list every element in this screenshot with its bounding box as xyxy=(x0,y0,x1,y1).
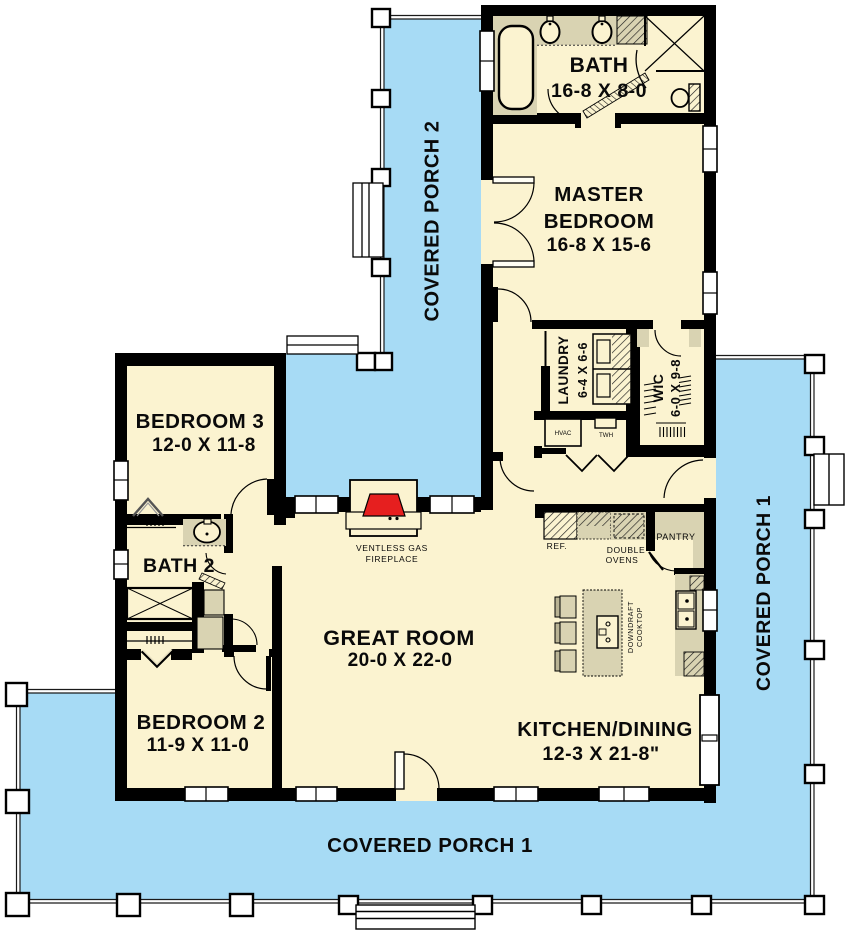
svg-text:COVERED PORCH 2: COVERED PORCH 2 xyxy=(422,121,444,322)
svg-text:12-0 X 11-8: 12-0 X 11-8 xyxy=(152,435,256,456)
svg-text:BATH 2: BATH 2 xyxy=(143,555,215,577)
svg-text:BEDROOM 3: BEDROOM 3 xyxy=(136,410,265,433)
svg-text:DOWNDRAFT: DOWNDRAFT xyxy=(626,601,635,653)
svg-text:6-0 X 9-8: 6-0 X 9-8 xyxy=(668,359,683,417)
svg-text:TWH: TWH xyxy=(599,432,613,439)
svg-text:HVAC: HVAC xyxy=(555,430,572,437)
svg-text:DOUBLE: DOUBLE xyxy=(607,545,646,555)
svg-text:BATH: BATH xyxy=(570,54,629,77)
svg-text:GREAT ROOM: GREAT ROOM xyxy=(323,626,475,650)
svg-text:11-9 X 11-0: 11-9 X 11-0 xyxy=(147,735,250,756)
svg-text:COOKTOP: COOKTOP xyxy=(635,607,644,647)
svg-text:KITCHEN/DINING: KITCHEN/DINING xyxy=(517,718,693,741)
svg-text:REF.: REF. xyxy=(547,541,568,551)
svg-text:6-4 X 6-6: 6-4 X 6-6 xyxy=(576,342,590,398)
svg-text:20-0 X 22-0: 20-0 X 22-0 xyxy=(348,650,453,671)
svg-text:BEDROOM: BEDROOM xyxy=(544,210,655,233)
svg-text:COVERED PORCH 1: COVERED PORCH 1 xyxy=(327,834,533,857)
svg-text:MASTER: MASTER xyxy=(554,183,644,206)
svg-text:PANTRY: PANTRY xyxy=(656,532,695,542)
svg-text:LAUNDRY: LAUNDRY xyxy=(556,336,571,405)
svg-text:BEDROOM 2: BEDROOM 2 xyxy=(137,711,266,734)
svg-text:OVENS: OVENS xyxy=(606,555,639,565)
svg-text:COVERED PORCH 1: COVERED PORCH 1 xyxy=(753,495,775,691)
svg-text:16-8 X 15-6: 16-8 X 15-6 xyxy=(547,235,652,256)
svg-text:WIC: WIC xyxy=(650,374,666,403)
svg-text:12-3 X 21-8": 12-3 X 21-8" xyxy=(542,743,659,765)
svg-text:VENTLESS GAS: VENTLESS GAS xyxy=(356,543,428,553)
svg-text:FIREPLACE: FIREPLACE xyxy=(366,554,419,564)
svg-text:16-8 X 8-0: 16-8 X 8-0 xyxy=(551,80,647,102)
